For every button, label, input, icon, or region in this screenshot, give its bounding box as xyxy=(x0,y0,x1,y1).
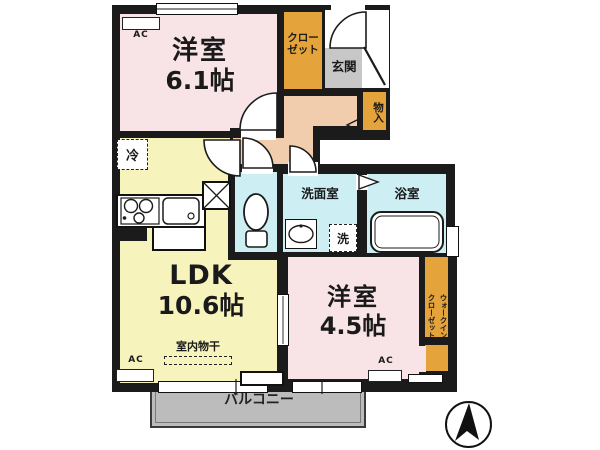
bedroom2-name-label: 洋室 xyxy=(306,284,400,312)
balcony-label: バルコニー xyxy=(213,392,305,408)
washing-machine-label: 洗 xyxy=(337,230,349,247)
walkin-label-line1: ウォークイン xyxy=(437,261,449,371)
window-bathroom-right xyxy=(446,226,459,257)
refrigerator-label: 冷 xyxy=(126,145,139,164)
sliding-door-ldk-bedroom2 xyxy=(277,294,289,346)
bathroom-door-opening xyxy=(356,175,368,190)
washbasin-cabinet xyxy=(285,219,317,249)
bedroom1-size-label: 6.1帖 xyxy=(152,67,248,96)
front-door-opening xyxy=(331,4,365,12)
ac-label-bedroom2: AC xyxy=(371,356,401,366)
indoor-drying-rail xyxy=(164,356,232,365)
bathroom-label: 浴室 xyxy=(385,187,429,201)
storage-label: 物入 xyxy=(366,95,384,129)
closet-label: クロー ゼット xyxy=(283,32,323,56)
kitchen-counter xyxy=(116,194,206,228)
toilet-room xyxy=(235,172,277,252)
refrigerator-box: 冷 xyxy=(117,139,148,170)
ac-unit-box-bedroom2 xyxy=(368,370,402,382)
closet-label-line1: クロー xyxy=(283,32,323,44)
ac-unit-box-ldk xyxy=(116,369,154,382)
floor-plan: 冷 洗 xyxy=(0,0,600,450)
window-walkin-bottom xyxy=(408,374,443,383)
bedroom2-size-label: 4.5帖 xyxy=(300,313,406,341)
washroom-door-opening xyxy=(288,162,318,176)
front-door-area xyxy=(362,46,389,88)
ac-label-ldk: AC xyxy=(121,355,151,365)
bedroom1-door-opening xyxy=(241,130,276,140)
walkin-closet-label: ウォークイン クローゼット xyxy=(424,261,449,371)
compass-circle xyxy=(445,401,492,448)
pipe-space-box xyxy=(202,181,231,210)
closet-label-line2: ゼット xyxy=(283,44,323,56)
shutter-box xyxy=(240,371,284,386)
ac-unit-box-bedroom1 xyxy=(122,17,160,30)
entrance-label: 玄関 xyxy=(326,60,362,74)
toilet-door-opening xyxy=(242,162,273,174)
walkin-label-line2: クローゼット xyxy=(425,261,437,371)
window-bedroom1-top xyxy=(156,3,238,15)
kitchen-counter-lower xyxy=(152,226,206,251)
entrance-vestibule xyxy=(325,10,389,48)
washing-machine-box: 洗 xyxy=(329,224,357,252)
hallway-upper xyxy=(284,96,357,126)
indoor-drying-label: 室内物干 xyxy=(162,341,234,354)
ldk-size-label: 10.6帖 xyxy=(148,292,254,321)
bedroom1-name-label: 洋室 xyxy=(158,37,242,67)
hallway-mid xyxy=(284,126,313,164)
ldk-name-label: LDK xyxy=(156,260,246,291)
washroom-label: 洗面室 xyxy=(289,187,351,201)
ac-label-bedroom1: AC xyxy=(126,30,156,40)
kitchen-end-panel xyxy=(116,228,147,241)
